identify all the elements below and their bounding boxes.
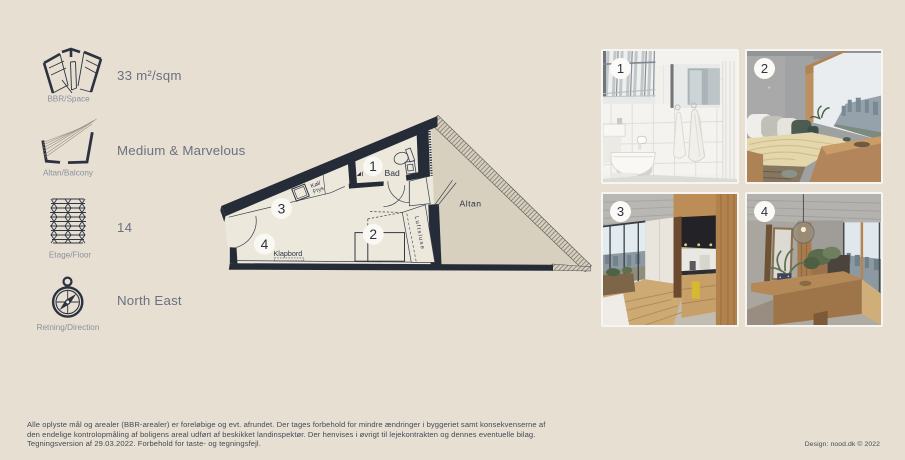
svg-text:Retning/Direction: Retning/Direction [37, 323, 100, 332]
svg-text:Bad: Bad [385, 168, 401, 178]
svg-text:Etage/Floor: Etage/Floor [49, 251, 92, 260]
svg-text:BBR/Space: BBR/Space [47, 95, 90, 104]
svg-text:Klapbord: Klapbord [274, 249, 303, 258]
svg-text:2: 2 [369, 227, 377, 242]
svg-text:3: 3 [278, 201, 286, 216]
svg-text:Altan/Balcony: Altan/Balcony [43, 169, 94, 178]
svg-text:4: 4 [261, 237, 269, 252]
svg-text:Altan: Altan [460, 199, 482, 209]
svg-text:1: 1 [369, 159, 377, 174]
